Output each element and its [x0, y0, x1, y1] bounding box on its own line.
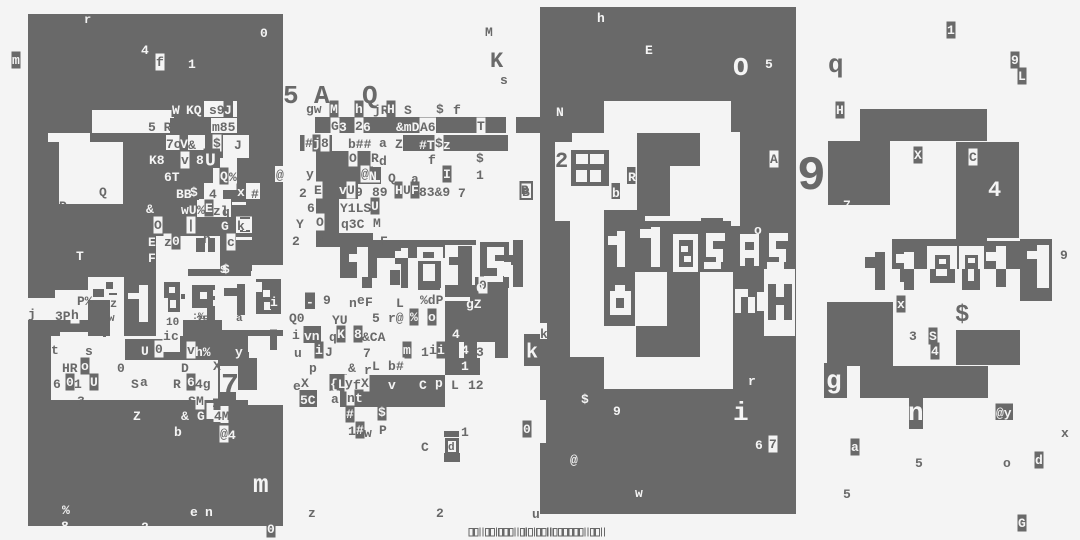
svg-text:Q: Q: [220, 169, 228, 184]
svg-text:X: X: [301, 376, 309, 391]
svg-text:c: c: [227, 235, 235, 250]
svg-text:i: i: [292, 328, 300, 343]
svg-text:3: 3: [339, 120, 347, 135]
svg-text:x: x: [237, 185, 245, 200]
svg-text:G: G: [331, 119, 339, 134]
svg-text:n: n: [349, 296, 357, 311]
svg-text:z: z: [110, 297, 117, 311]
svg-text:o: o: [428, 310, 436, 325]
svg-text:E: E: [645, 43, 653, 58]
svg-text:T: T: [76, 249, 84, 264]
svg-text:0: 0: [267, 522, 275, 537]
svg-text:Z: Z: [133, 409, 141, 424]
svg-text:N: N: [380, 360, 388, 375]
svg-text:i: i: [163, 329, 171, 344]
svg-text:V: V: [180, 137, 188, 152]
svg-text:f: f: [453, 103, 461, 118]
svg-text:o: o: [754, 223, 762, 238]
svg-text:f: f: [428, 153, 436, 168]
svg-text:1: 1: [947, 23, 955, 38]
svg-text:s9: s9: [209, 103, 225, 118]
svg-text:7: 7: [458, 186, 466, 201]
svg-text:Z: Z: [395, 137, 403, 152]
svg-text:gw: gw: [306, 102, 322, 117]
svg-text:$: $: [213, 136, 221, 151]
svg-text:i: i: [270, 295, 278, 310]
svg-text:2: 2: [355, 119, 363, 134]
svg-text:2: 2: [299, 186, 307, 201]
svg-text:3: 3: [77, 394, 85, 409]
svg-text:B: B: [522, 185, 530, 200]
svg-text:1: 1: [348, 424, 356, 439]
svg-text:N: N: [369, 169, 377, 184]
svg-text:i: i: [437, 343, 445, 358]
svg-text:$: $: [476, 151, 484, 166]
svg-text:L: L: [396, 296, 404, 311]
svg-text:1: 1: [74, 377, 82, 392]
svg-text:v: v: [339, 183, 347, 198]
svg-text:h: h: [597, 11, 605, 26]
svg-text:a: a: [331, 392, 339, 407]
svg-text:O: O: [154, 218, 162, 233]
svg-text:0: 0: [476, 281, 484, 296]
svg-text:c: c: [171, 329, 179, 344]
svg-text:M: M: [330, 102, 338, 117]
svg-text:x: x: [1061, 426, 1069, 441]
svg-text:y: y: [306, 167, 314, 182]
svg-text:KQ: KQ: [186, 103, 202, 118]
svg-text:a: a: [379, 136, 387, 151]
svg-text:6: 6: [53, 377, 61, 392]
svg-text:4: 4: [461, 343, 469, 358]
svg-text:u: u: [294, 346, 302, 361]
svg-text:F: F: [148, 251, 156, 266]
svg-text:#: #: [346, 407, 354, 422]
svg-text:C: C: [969, 150, 977, 165]
svg-text:h: h: [355, 102, 363, 117]
svg-text:%: %: [410, 310, 418, 325]
svg-text:M: M: [373, 216, 381, 231]
svg-text:wU: wU: [181, 203, 197, 218]
svg-text:r: r: [748, 374, 756, 389]
svg-text:d: d: [1035, 453, 1043, 468]
svg-text:k: k: [540, 327, 548, 342]
svg-text:u: u: [69, 328, 77, 343]
svg-text:4: 4: [452, 327, 460, 342]
svg-text:6: 6: [755, 438, 763, 453]
svg-text:Y1LS: Y1LS: [340, 201, 371, 216]
svg-text:7: 7: [363, 346, 371, 361]
svg-text:W: W: [172, 103, 180, 118]
svg-text:T: T: [477, 119, 485, 134]
svg-text:z: z: [437, 361, 445, 376]
svg-text:9: 9: [1060, 248, 1068, 263]
svg-text:z: z: [443, 138, 451, 153]
svg-text:25: 25: [196, 315, 210, 327]
svg-text:q: q: [222, 205, 230, 220]
svg-text:1: 1: [461, 359, 469, 374]
svg-text:5: 5: [843, 487, 851, 502]
svg-text:4: 4: [228, 428, 236, 443]
svg-text:8: 8: [61, 519, 69, 534]
svg-text:0: 0: [260, 26, 268, 41]
svg-text:E: E: [314, 183, 322, 198]
svg-text:m: m: [253, 470, 269, 500]
svg-text:w: w: [364, 426, 372, 441]
svg-text:3P: 3P: [55, 309, 71, 324]
svg-text:2: 2: [141, 520, 149, 535]
svg-text:z: z: [164, 235, 172, 250]
svg-text:G: G: [221, 219, 229, 234]
svg-text:#: #: [305, 136, 313, 151]
svg-text:1: 1: [188, 57, 196, 72]
svg-text:j: j: [28, 307, 36, 322]
svg-text:X: X: [361, 376, 369, 391]
svg-text:4: 4: [141, 43, 149, 58]
svg-text:F: F: [365, 295, 373, 310]
svg-text:L: L: [451, 378, 459, 393]
svg-text:P%: P%: [77, 294, 93, 309]
svg-text:5: 5: [765, 57, 773, 72]
svg-text:-: -: [306, 295, 314, 310]
svg-text:@: @: [220, 427, 228, 442]
svg-text:4M: 4M: [214, 409, 230, 424]
svg-text:2: 2: [436, 506, 444, 521]
svg-text:7: 7: [843, 198, 851, 213]
svg-text:7: 7: [221, 370, 239, 404]
svg-text:K: K: [490, 49, 504, 74]
svg-text:U: U: [205, 152, 216, 172]
svg-text:S: S: [188, 394, 196, 409]
svg-text:F: F: [380, 234, 388, 249]
svg-text:%dP: %dP: [420, 293, 444, 308]
svg-text:m: m: [403, 343, 411, 358]
svg-text:@: @: [361, 167, 369, 182]
svg-text:89: 89: [372, 185, 388, 200]
svg-text:@y: @y: [996, 406, 1012, 421]
svg-text:r: r: [84, 13, 91, 27]
svg-text:YU: YU: [332, 313, 348, 328]
svg-text:2: 2: [316, 234, 324, 249]
svg-text:A: A: [770, 152, 778, 167]
svg-text:L: L: [1018, 69, 1026, 84]
svg-text:b: b: [388, 359, 396, 374]
svg-text:w: w: [635, 486, 643, 501]
svg-text:HR: HR: [62, 361, 78, 376]
svg-text:m85: m85: [212, 120, 236, 135]
svg-text:X: X: [914, 148, 922, 163]
svg-text:b: b: [612, 186, 620, 201]
svg-text:S: S: [131, 377, 139, 392]
svg-text:j: j: [313, 136, 321, 151]
svg-text:$: $: [378, 405, 386, 420]
svg-text:I: I: [443, 167, 451, 182]
svg-text:$: $: [436, 102, 444, 117]
svg-text:E: E: [205, 201, 213, 216]
svg-text:P: P: [59, 199, 67, 214]
svg-text:0: 0: [523, 422, 531, 437]
svg-text:y: y: [345, 376, 353, 391]
svg-text:G: G: [197, 409, 205, 424]
svg-text:7: 7: [769, 437, 777, 452]
svg-text:t: t: [51, 343, 59, 358]
svg-text:u: u: [532, 507, 540, 522]
svg-text:@: @: [276, 168, 284, 183]
svg-text:G: G: [1018, 516, 1026, 531]
svg-text:5C: 5C: [300, 393, 316, 408]
svg-text:#T: #T: [419, 138, 435, 153]
svg-text:b: b: [174, 425, 182, 440]
svg-text:t: t: [355, 391, 363, 406]
svg-text:#: #: [396, 359, 404, 374]
svg-text:U: U: [371, 199, 379, 214]
svg-text:8: 8: [354, 327, 362, 342]
svg-text:6T: 6T: [164, 170, 180, 185]
svg-text:a: a: [236, 313, 243, 325]
svg-text:5: 5: [372, 311, 380, 326]
svg-text:O: O: [349, 151, 357, 166]
svg-text:|: |: [187, 218, 195, 233]
svg-text:2: 2: [555, 149, 568, 174]
svg-text:i: i: [315, 343, 323, 358]
svg-text:10: 10: [166, 317, 179, 329]
svg-text:S: S: [220, 265, 227, 277]
svg-text:r@: r@: [388, 311, 404, 326]
svg-text:f: f: [156, 55, 164, 70]
svg-text:&: &: [181, 409, 189, 424]
svg-text:0: 0: [155, 342, 163, 357]
svg-text:w: w: [108, 313, 115, 325]
svg-text:p: p: [309, 361, 317, 376]
svg-text:n: n: [908, 398, 924, 428]
svg-text:78: 78: [309, 378, 325, 393]
svg-text:Q: Q: [99, 185, 107, 200]
svg-text:4g: 4g: [195, 377, 211, 392]
svg-text:8: 8: [196, 153, 204, 168]
svg-text:s: s: [500, 73, 508, 88]
svg-text:O: O: [316, 215, 324, 230]
svg-text:g: g: [826, 366, 842, 396]
svg-text:{L: {L: [330, 377, 346, 392]
svg-text:9: 9: [797, 150, 826, 204]
svg-text:83&9: 83&9: [419, 185, 450, 200]
svg-text:0: 0: [172, 234, 180, 249]
svg-text:5 R: 5 R: [148, 120, 172, 135]
svg-text:4: 4: [209, 187, 217, 202]
svg-text:0: 0: [66, 375, 74, 390]
svg-text:4: 4: [988, 178, 1001, 203]
svg-text:M: M: [196, 394, 204, 409]
svg-text:J: J: [224, 103, 232, 118]
svg-text:$: $: [955, 302, 969, 329]
svg-text:%: %: [197, 203, 205, 218]
svg-text:1: 1: [421, 345, 429, 360]
svg-text:s: s: [85, 344, 93, 359]
svg-text:9: 9: [355, 185, 363, 200]
svg-text:k: k: [526, 341, 538, 364]
svg-text:v: v: [187, 343, 195, 358]
svg-text:E: E: [148, 235, 156, 250]
svg-text:o: o: [1003, 456, 1011, 471]
svg-text:h%: h%: [195, 345, 211, 360]
svg-text:9: 9: [613, 404, 621, 419]
svg-text:6: 6: [363, 120, 371, 135]
svg-text:#: #: [251, 187, 259, 202]
svg-text:&: &: [348, 361, 356, 376]
svg-text:z: z: [308, 506, 316, 521]
svg-text:H: H: [387, 102, 395, 117]
svg-text:Y: Y: [296, 217, 304, 232]
svg-text:6: 6: [187, 375, 195, 390]
svg-text:@: @: [570, 453, 578, 468]
svg-text:R: R: [628, 170, 636, 185]
svg-text:H: H: [836, 103, 844, 118]
svg-text:A6: A6: [420, 120, 436, 135]
svg-text:S: S: [929, 329, 937, 344]
svg-text:2: 2: [292, 234, 300, 249]
svg-text:J: J: [325, 345, 333, 360]
svg-text:9: 9: [1011, 53, 1019, 68]
svg-text:p: p: [435, 376, 443, 391]
svg-text:n: n: [347, 391, 355, 406]
svg-text:3: 3: [476, 345, 484, 360]
svg-text:H: H: [395, 183, 403, 198]
svg-text:U: U: [90, 375, 98, 390]
svg-text:&mD: &mD: [396, 120, 420, 135]
svg-text:q3C: q3C: [341, 217, 365, 232]
svg-text:C: C: [419, 378, 427, 393]
svg-text:d: d: [379, 154, 387, 169]
svg-text:6: 6: [307, 201, 315, 216]
svg-text:1: 1: [461, 425, 469, 440]
svg-text:m: m: [12, 53, 20, 68]
svg-text:&: &: [146, 202, 154, 217]
svg-text:P: P: [379, 423, 387, 438]
svg-text:12: 12: [468, 378, 484, 393]
svg-text:K8: K8: [149, 153, 165, 168]
svg-text:N: N: [556, 105, 564, 120]
svg-text:K: K: [337, 327, 345, 342]
svg-text:%: %: [229, 170, 237, 185]
svg-text:U: U: [347, 183, 355, 198]
svg-text:R: R: [371, 151, 379, 166]
svg-text:h: h: [71, 308, 79, 323]
svg-text:n: n: [205, 505, 213, 520]
svg-text:y: y: [235, 345, 243, 360]
svg-text:&: &: [188, 138, 196, 153]
svg-text:q: q: [828, 50, 844, 80]
svg-text:O: O: [733, 53, 749, 83]
svg-text:o: o: [81, 359, 89, 374]
svg-text:d: d: [448, 442, 455, 454]
svg-text:U: U: [141, 344, 149, 359]
svg-text:&CA: &CA: [362, 330, 386, 345]
svg-text:$: $: [435, 136, 443, 151]
svg-text:5: 5: [283, 81, 299, 111]
svg-text:8: 8: [321, 136, 329, 151]
svg-text:R: R: [173, 377, 181, 392]
svg-text:X: X: [213, 359, 221, 374]
svg-text:9: 9: [323, 293, 331, 308]
svg-text:h: h: [203, 232, 211, 247]
svg-text:4: 4: [931, 344, 939, 359]
svg-text:L: L: [372, 359, 380, 374]
svg-text:Q0: Q0: [289, 311, 305, 326]
svg-text:b##: b##: [348, 137, 372, 152]
svg-text:J: J: [234, 138, 242, 153]
svg-text:gZ: gZ: [466, 297, 482, 312]
svg-text:$: $: [581, 392, 589, 407]
svg-text:k: k: [237, 219, 245, 234]
svg-text:i: i: [429, 343, 437, 358]
svg-text:a: a: [851, 440, 859, 455]
svg-text:e: e: [190, 505, 198, 520]
svg-text:%: %: [62, 503, 70, 518]
svg-text:a: a: [140, 375, 148, 390]
svg-text:x: x: [897, 297, 905, 312]
svg-text:F: F: [411, 183, 419, 198]
svg-text:v: v: [181, 153, 189, 168]
svg-text:D: D: [181, 361, 189, 376]
svg-text:1: 1: [476, 168, 484, 183]
svg-text:q: q: [329, 330, 337, 345]
svg-text:e: e: [293, 379, 301, 394]
svg-text:M: M: [485, 25, 493, 40]
svg-text:S: S: [404, 103, 412, 118]
svg-text:i: i: [733, 398, 749, 428]
svg-text:0: 0: [117, 361, 125, 376]
svg-text:v: v: [388, 378, 396, 393]
svg-text:C: C: [421, 440, 429, 455]
svg-text:U: U: [403, 183, 411, 198]
svg-text:e: e: [357, 293, 365, 308]
svg-text:5: 5: [915, 456, 923, 471]
svg-text:#: #: [356, 423, 364, 438]
svg-text:vn: vn: [304, 329, 320, 344]
svg-text:w: w: [246, 523, 254, 538]
svg-text:3: 3: [909, 329, 917, 344]
svg-text:$: $: [190, 185, 198, 200]
